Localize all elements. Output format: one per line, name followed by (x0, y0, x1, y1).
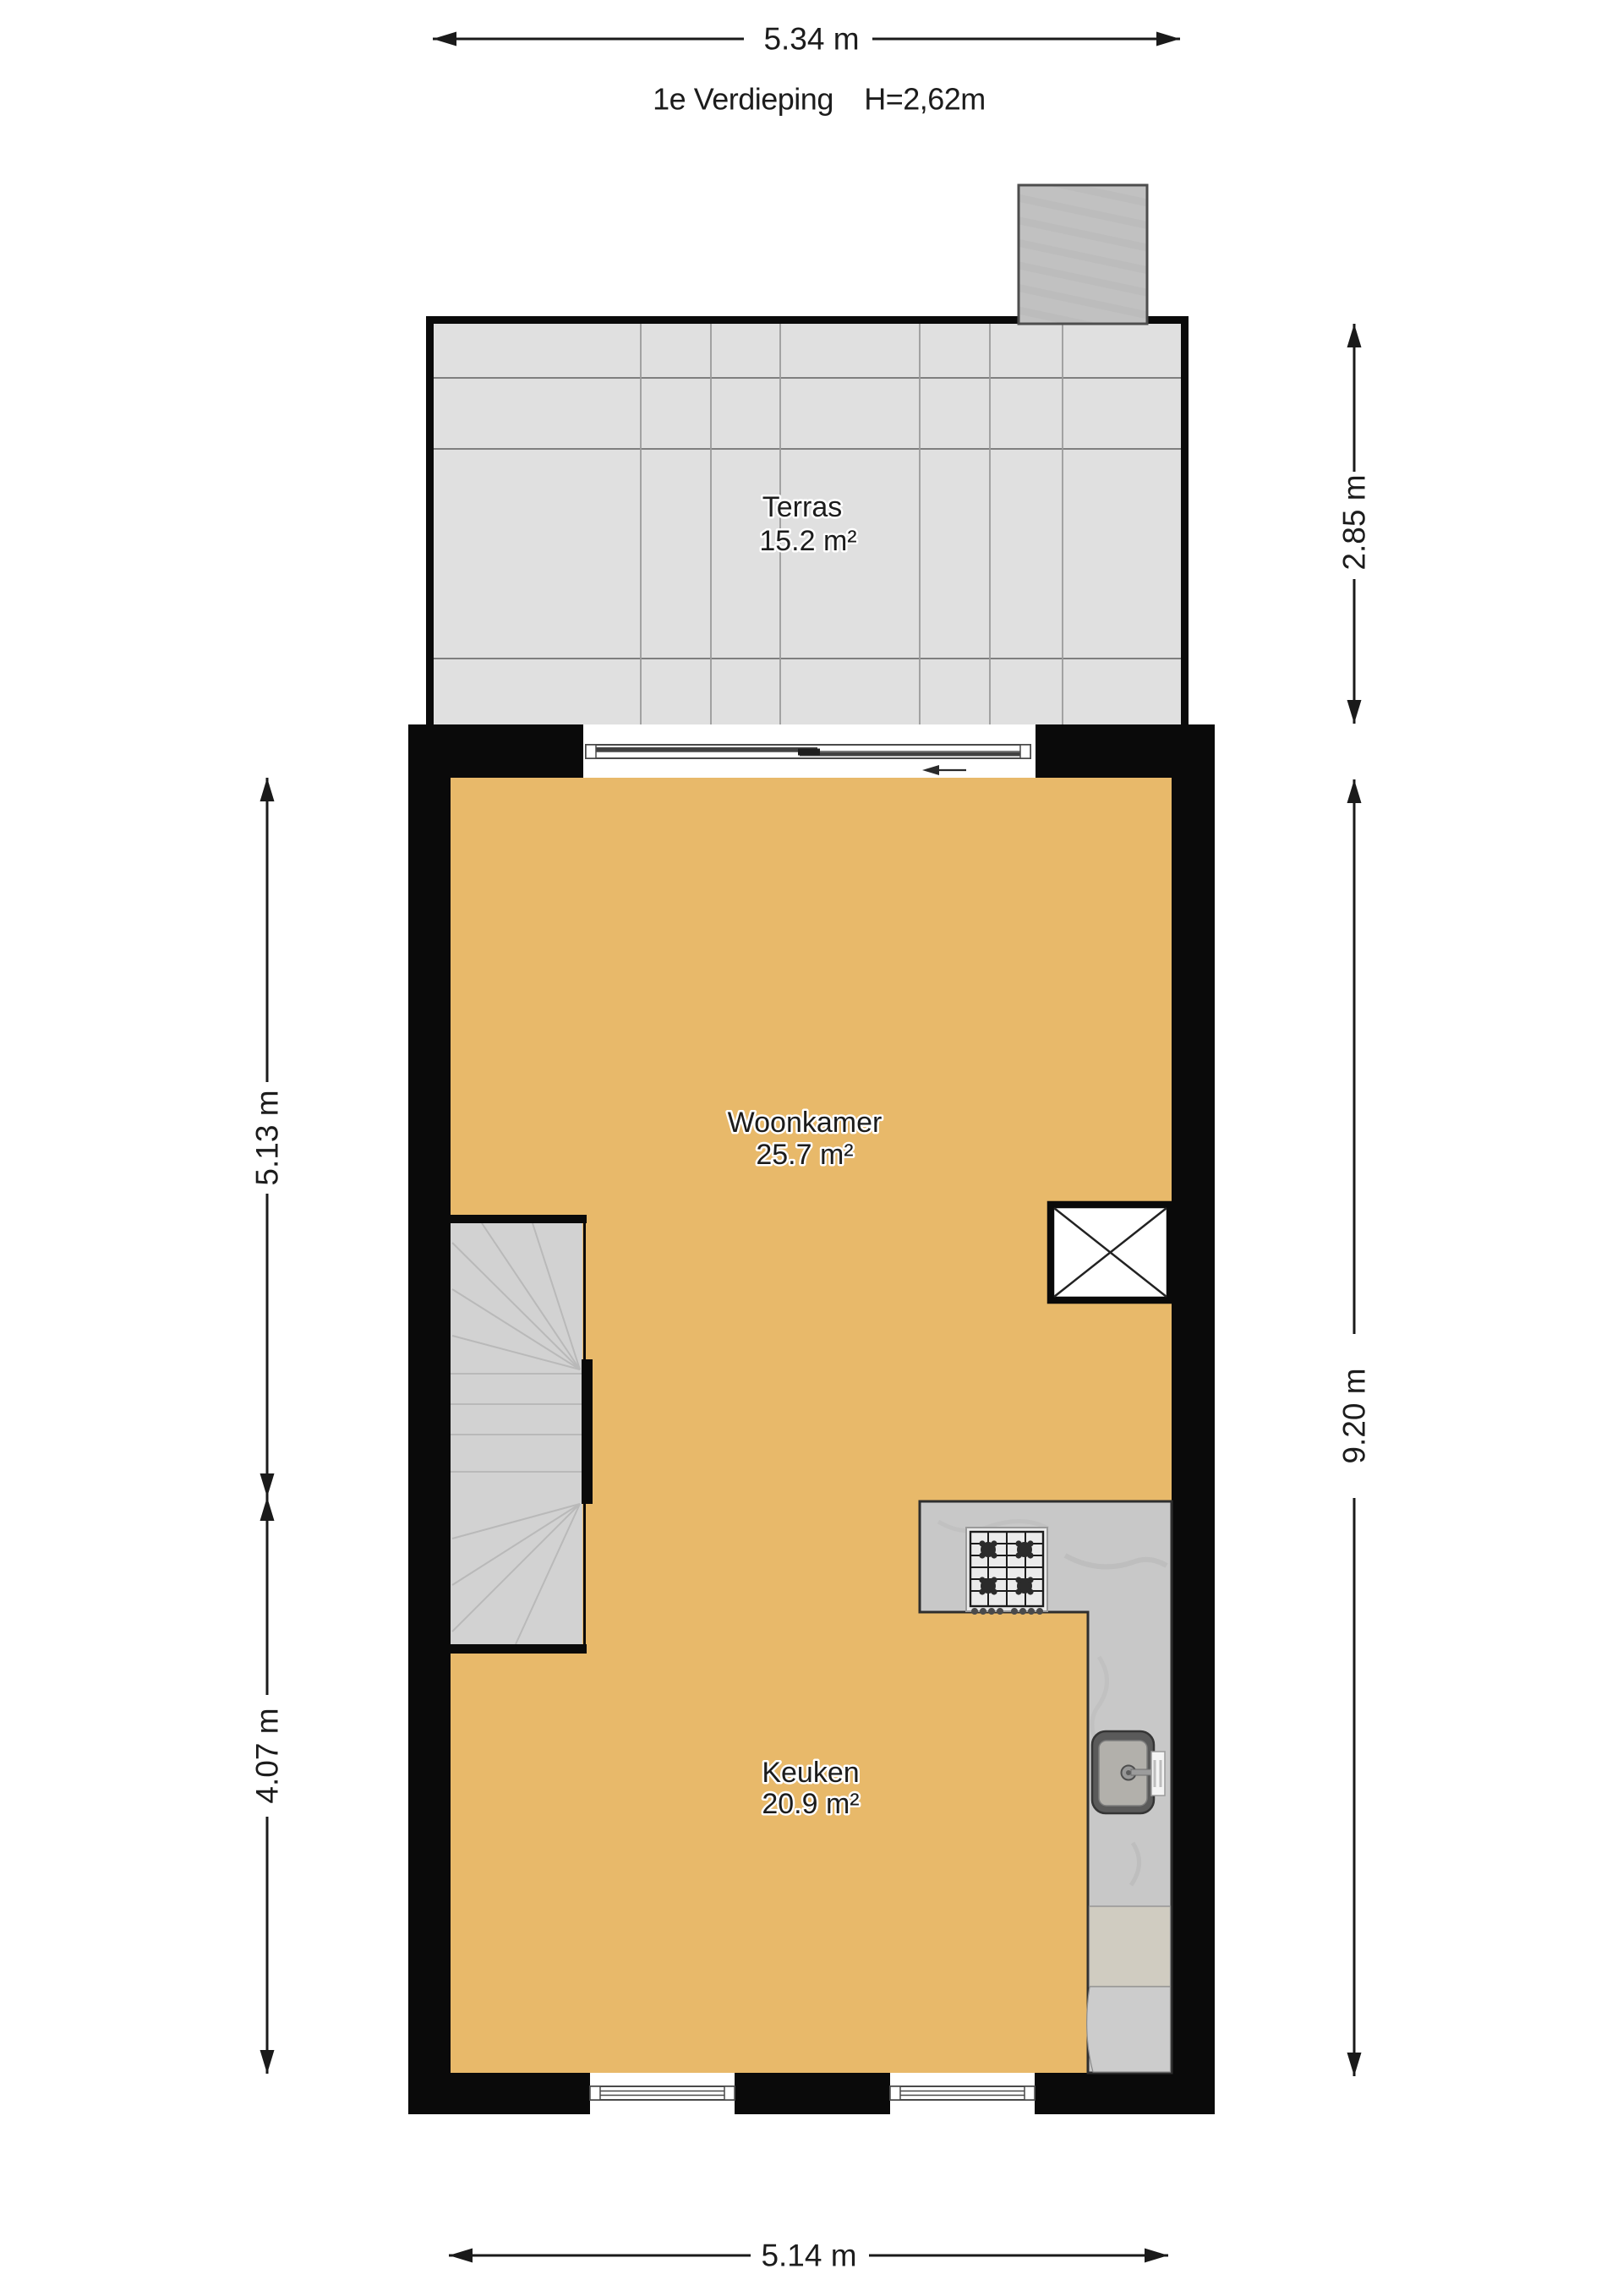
svg-text:5.14 m: 5.14 m (761, 2239, 856, 2273)
svg-text:Woonkamer: Woonkamer (728, 1107, 883, 1139)
svg-text:20.9 m²: 20.9 m² (762, 1788, 859, 1820)
svg-text:4.07 m: 4.07 m (250, 1708, 285, 1803)
svg-text:1e Verdieping: 1e Verdieping (653, 82, 833, 117)
svg-text:Keuken: Keuken (762, 1757, 859, 1789)
svg-text:5.13 m: 5.13 m (250, 1090, 285, 1185)
svg-text:Terras: Terras (762, 491, 842, 523)
svg-text:9.20 m: 9.20 m (1337, 1368, 1372, 1463)
svg-text:25.7 m²: 25.7 m² (756, 1139, 853, 1171)
svg-text:H=2,62m: H=2,62m (864, 82, 986, 117)
svg-text:5.34 m: 5.34 m (763, 22, 859, 57)
svg-text:15.2 m²: 15.2 m² (759, 525, 856, 557)
svg-text:2.85 m: 2.85 m (1337, 474, 1372, 570)
